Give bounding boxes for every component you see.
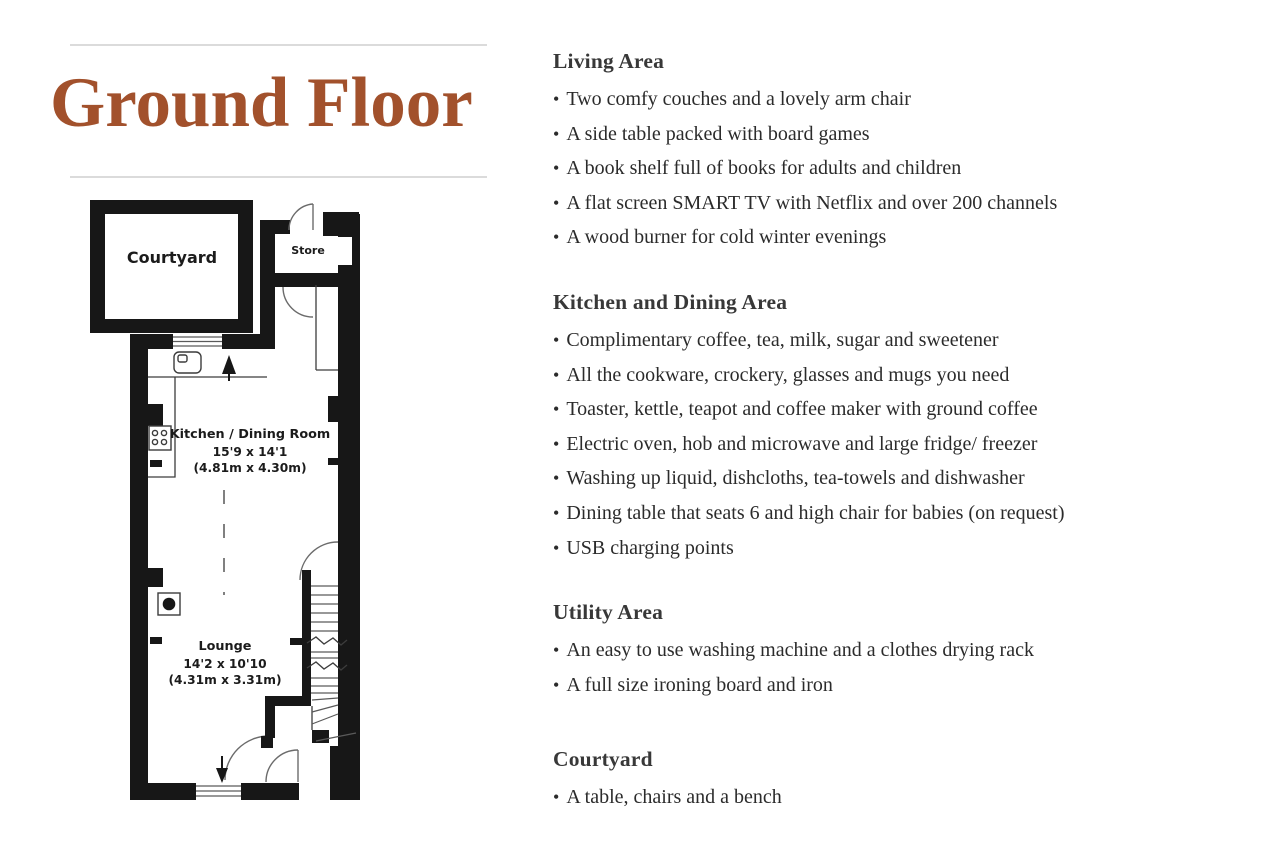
list-item: •An easy to use washing machine and a cl… [553, 633, 1178, 668]
divider-line-bottom [70, 176, 487, 178]
section-list: •A table, chairs and a bench [553, 780, 1178, 815]
hob-icon [149, 426, 171, 450]
sink-icon [174, 352, 201, 373]
list-item: •A wood burner for cold winter evenings [553, 220, 1178, 255]
store-label: Store [291, 244, 325, 257]
bullet-icon: • [553, 158, 559, 178]
list-item: •USB charging points [553, 531, 1178, 566]
list-item-text: All the cookware, crockery, glasses and … [566, 364, 1009, 386]
list-item-text: A table, chairs and a bench [566, 786, 781, 808]
list-item: •Electric oven, hob and microwave and la… [553, 427, 1178, 462]
bullet-icon: • [553, 640, 559, 660]
section-list: •Complimentary coffee, tea, milk, sugar … [553, 323, 1178, 565]
bullet-icon: • [553, 89, 559, 109]
kitchen-label: Kitchen / Dining Room [170, 427, 331, 442]
bullet-icon: • [553, 193, 559, 213]
list-item-text: Electric oven, hob and microwave and lar… [566, 433, 1037, 455]
list-item-text: Two comfy couches and a lovely arm chair [566, 88, 911, 110]
list-item-text: Toaster, kettle, teapot and coffee maker… [566, 398, 1037, 420]
list-item-text: A full size ironing board and iron [566, 674, 833, 696]
bullet-icon: • [553, 399, 559, 419]
page: Ground Floor Courtyard [0, 0, 1280, 850]
bullet-icon: • [553, 124, 559, 144]
tick-lounge-left [150, 637, 162, 644]
list-item-text: Washing up liquid, dishcloths, tea-towel… [566, 467, 1024, 489]
section-courtyard: Courtyard •A table, chairs and a bench [553, 744, 1178, 815]
list-item-text: An easy to use washing machine and a clo… [566, 639, 1034, 661]
kitchen-dims-imperial: 15'9 x 14'1 [213, 445, 288, 459]
list-item-text: A side table packed with board games [566, 123, 869, 145]
bullet-icon: • [553, 330, 559, 350]
lobby-door-arc [266, 750, 298, 782]
bullet-icon: • [553, 365, 559, 385]
store-door-arc [289, 204, 313, 230]
bullet-icon: • [553, 227, 559, 247]
winder-step [312, 698, 338, 700]
list-item: •Dining table that seats 6 and high chai… [553, 496, 1178, 531]
bullet-icon: • [553, 468, 559, 488]
lounge-dims-metric: (4.31m x 3.31m) [168, 673, 281, 687]
list-item-text: A wood burner for cold winter evenings [566, 226, 886, 248]
divider-line-top [70, 44, 487, 46]
entrance-arrow-bottom-icon [216, 756, 228, 783]
bullet-icon: • [553, 538, 559, 558]
list-item: •A side table packed with board games [553, 117, 1178, 152]
floorplan-diagram: Courtyard [75, 190, 405, 810]
kitchen-dims-metric: (4.81m x 4.30m) [193, 461, 306, 475]
list-item: •A flat screen SMART TV with Netflix and… [553, 186, 1178, 221]
list-item: •Complimentary coffee, tea, milk, sugar … [553, 323, 1178, 358]
courtyard-room: Courtyard [90, 200, 253, 333]
courtyard-label: Courtyard [127, 248, 217, 267]
list-item: •A full size ironing board and iron [553, 668, 1178, 703]
lounge-label: Lounge [198, 639, 251, 654]
bullet-icon: • [553, 503, 559, 523]
section-heading: Utility Area [553, 597, 1178, 627]
winder-step [312, 714, 338, 724]
list-item-text: USB charging points [566, 537, 733, 559]
hall-door-arc [283, 287, 313, 317]
section-heading: Living Area [553, 46, 1178, 76]
list-item-text: A flat screen SMART TV with Netflix and … [566, 192, 1057, 214]
tick-kitchen-left [150, 460, 162, 467]
section-list: •Two comfy couches and a lovely arm chai… [553, 82, 1178, 255]
list-item: •Washing up liquid, dishcloths, tea-towe… [553, 461, 1178, 496]
list-item-text: Complimentary coffee, tea, milk, sugar a… [566, 329, 998, 351]
list-item: •A table, chairs and a bench [553, 780, 1178, 815]
bullet-icon: • [553, 675, 559, 695]
tick-kitchen-right [328, 458, 340, 465]
winder-step [312, 705, 338, 712]
window-lounge [196, 786, 241, 796]
window-kitchen [173, 334, 222, 349]
section-list: •An easy to use washing machine and a cl… [553, 633, 1178, 702]
list-item: •A book shelf full of books for adults a… [553, 151, 1178, 186]
lounge-dims-imperial: 14'2 x 10'10 [183, 657, 266, 671]
page-title: Ground Floor [50, 68, 490, 139]
section-utility-area: Utility Area •An easy to use washing mac… [553, 597, 1178, 702]
tick-lounge-right [290, 638, 302, 645]
section-kitchen-dining: Kitchen and Dining Area •Complimentary c… [553, 287, 1178, 565]
amenities-column: Living Area •Two comfy couches and a lov… [553, 46, 1178, 847]
list-item: •Two comfy couches and a lovely arm chai… [553, 82, 1178, 117]
list-item-text: A book shelf full of books for adults an… [566, 157, 961, 179]
wood-burner-icon [158, 593, 180, 615]
stair-newel [312, 730, 329, 743]
section-heading: Kitchen and Dining Area [553, 287, 1178, 317]
list-item: •Toaster, kettle, teapot and coffee make… [553, 392, 1178, 427]
list-item-text: Dining table that seats 6 and high chair… [566, 502, 1064, 524]
bullet-icon: • [553, 787, 559, 807]
section-living-area: Living Area •Two comfy couches and a lov… [553, 46, 1178, 255]
list-item: •All the cookware, crockery, glasses and… [553, 358, 1178, 393]
section-heading: Courtyard [553, 744, 1178, 774]
bullet-icon: • [553, 434, 559, 454]
